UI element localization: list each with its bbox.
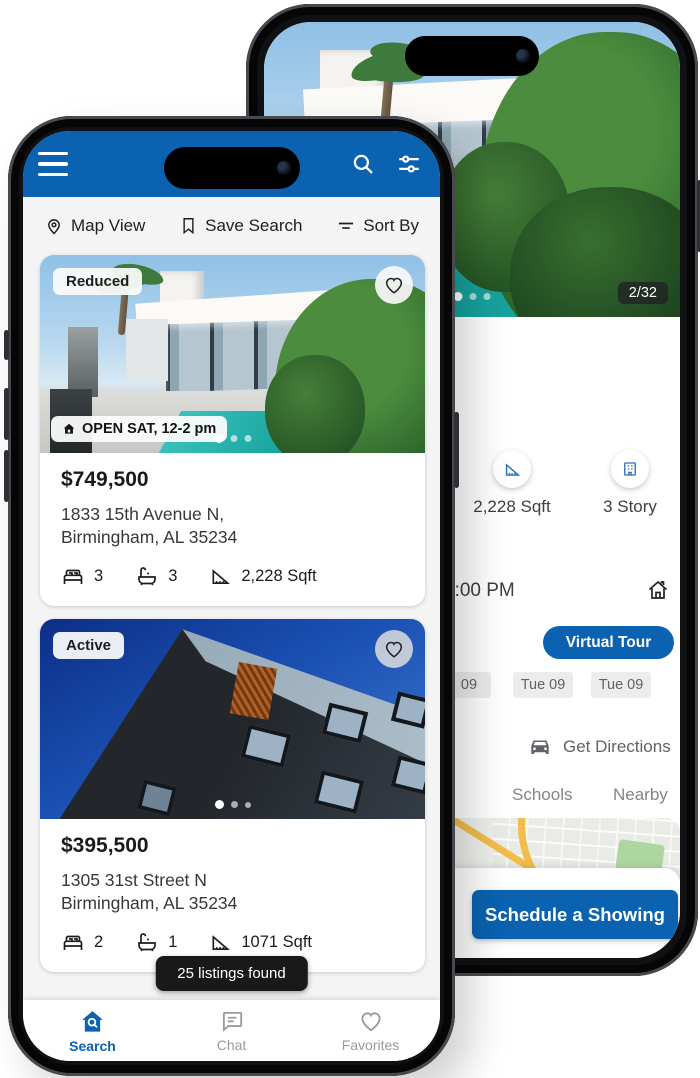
open-house-icon: [62, 422, 76, 436]
front-camera: [516, 49, 530, 63]
heart-icon: [358, 1008, 384, 1034]
bookmark-icon: [179, 216, 198, 235]
map-view-button[interactable]: Map View: [44, 216, 145, 236]
dynamic-island: [164, 147, 300, 189]
tune-filters-icon[interactable]: [396, 151, 422, 177]
get-directions-link[interactable]: Get Directions: [528, 735, 671, 759]
nav-tab-chat[interactable]: Chat: [162, 1000, 301, 1061]
favorite-button[interactable]: [375, 266, 413, 304]
sqft-value: 1071 Sqft: [241, 933, 312, 952]
save-search-label: Save Search: [205, 216, 302, 236]
house-outline-icon[interactable]: [646, 578, 670, 602]
beds-count: 3: [94, 567, 103, 586]
listing-features: 3 3 2,228 Sqft: [61, 564, 404, 588]
bed-icon: [61, 930, 85, 954]
photo-carousel-dots[interactable]: [214, 434, 251, 443]
favorite-button[interactable]: [375, 630, 413, 668]
listing-card[interactable]: Active $395,500 1305 31st Street N Birmi…: [40, 619, 425, 972]
volume-up-button: [4, 388, 9, 440]
nav-tab-favorites[interactable]: Favorites: [301, 1000, 440, 1061]
tab-schools[interactable]: Schools: [512, 785, 572, 805]
nav-label: Chat: [217, 1037, 247, 1053]
listing-photo[interactable]: Reduced OPEN SAT, 12-2 pm: [40, 255, 425, 453]
schedule-showing-button[interactable]: Schedule a Showing: [472, 890, 678, 939]
listing-price: $749,500: [61, 468, 404, 492]
status-badge: Reduced: [53, 268, 142, 295]
map-view-label: Map View: [71, 216, 145, 236]
mute-switch: [4, 330, 9, 360]
bottom-navigation: Search Chat Favorites: [23, 1000, 440, 1061]
virtual-tour-button[interactable]: Virtual Tour: [543, 626, 674, 659]
sort-icon: [336, 216, 356, 236]
beds-count: 2: [94, 933, 103, 952]
results-toolbar: Map View Save Search Sort By: [23, 197, 440, 254]
volume-down-button: [4, 450, 9, 502]
photo-carousel-dots[interactable]: [215, 800, 251, 809]
sqft-value: 2,228 Sqft: [241, 567, 316, 586]
search-icon[interactable]: [350, 151, 376, 177]
dynamic-island: [405, 36, 539, 76]
nav-tab-search[interactable]: Search: [23, 1000, 162, 1061]
bath-icon: [135, 564, 159, 588]
open-house-badge: OPEN SAT, 12-2 pm: [51, 416, 227, 442]
stat-story-label: 3 Story: [575, 497, 680, 517]
stat-story: 3 Story: [575, 450, 680, 517]
app-bar: [23, 131, 440, 197]
nav-label: Favorites: [342, 1037, 400, 1053]
location-pin-icon: [44, 216, 64, 236]
listing-address: 1833 15th Avenue N, Birmingham, AL 35234: [61, 503, 404, 549]
bed-icon: [61, 564, 85, 588]
photo-counter-badge: 2/32: [618, 282, 668, 304]
front-camera: [277, 161, 291, 175]
hamburger-menu-icon[interactable]: [38, 152, 68, 176]
photo-carousel-dots[interactable]: [454, 292, 491, 301]
status-badge: Active: [53, 632, 124, 659]
stat-sqft: 2,228 Sqft: [457, 450, 567, 517]
get-directions-label: Get Directions: [563, 737, 671, 757]
bath-icon: [135, 930, 159, 954]
chat-icon: [219, 1008, 245, 1034]
sqft-icon: [209, 931, 232, 954]
sqft-icon: [209, 565, 232, 588]
power-button: [454, 412, 459, 488]
car-icon: [528, 735, 552, 759]
open-house-label: OPEN SAT, 12-2 pm: [82, 421, 216, 437]
baths-count: 3: [168, 567, 177, 586]
front-phone-frame: Map View Save Search Sort By: [8, 116, 455, 1076]
search-home-icon: [79, 1008, 106, 1035]
sqft-icon: [493, 450, 531, 488]
listing-features: 2 1 1071 Sqft: [61, 930, 404, 954]
save-search-button[interactable]: Save Search: [179, 216, 302, 236]
baths-count: 1: [168, 933, 177, 952]
building-icon: [611, 450, 649, 488]
results-count-toast: 25 listings found: [155, 956, 307, 991]
listing-address: 1305 31st Street N Birmingham, AL 35234: [61, 869, 404, 915]
nav-label: Search: [69, 1038, 116, 1054]
sort-by-label: Sort By: [363, 216, 419, 236]
search-results-screen: Map View Save Search Sort By: [23, 131, 440, 1061]
tab-nearby[interactable]: Nearby: [613, 785, 668, 805]
listing-photo[interactable]: Active: [40, 619, 425, 819]
date-chip[interactable]: Tue 09: [591, 672, 651, 698]
app-marketing-composite: 2/32 2,228 Sqft 3 Story 2:00 PM: [0, 0, 700, 1078]
date-chip[interactable]: Tue 09: [513, 672, 573, 698]
listing-price: $395,500: [61, 834, 404, 858]
sort-by-button[interactable]: Sort By: [336, 216, 419, 236]
stat-sqft-label: 2,228 Sqft: [457, 497, 567, 517]
listing-card[interactable]: Reduced OPEN SAT, 12-2 pm: [40, 255, 425, 606]
